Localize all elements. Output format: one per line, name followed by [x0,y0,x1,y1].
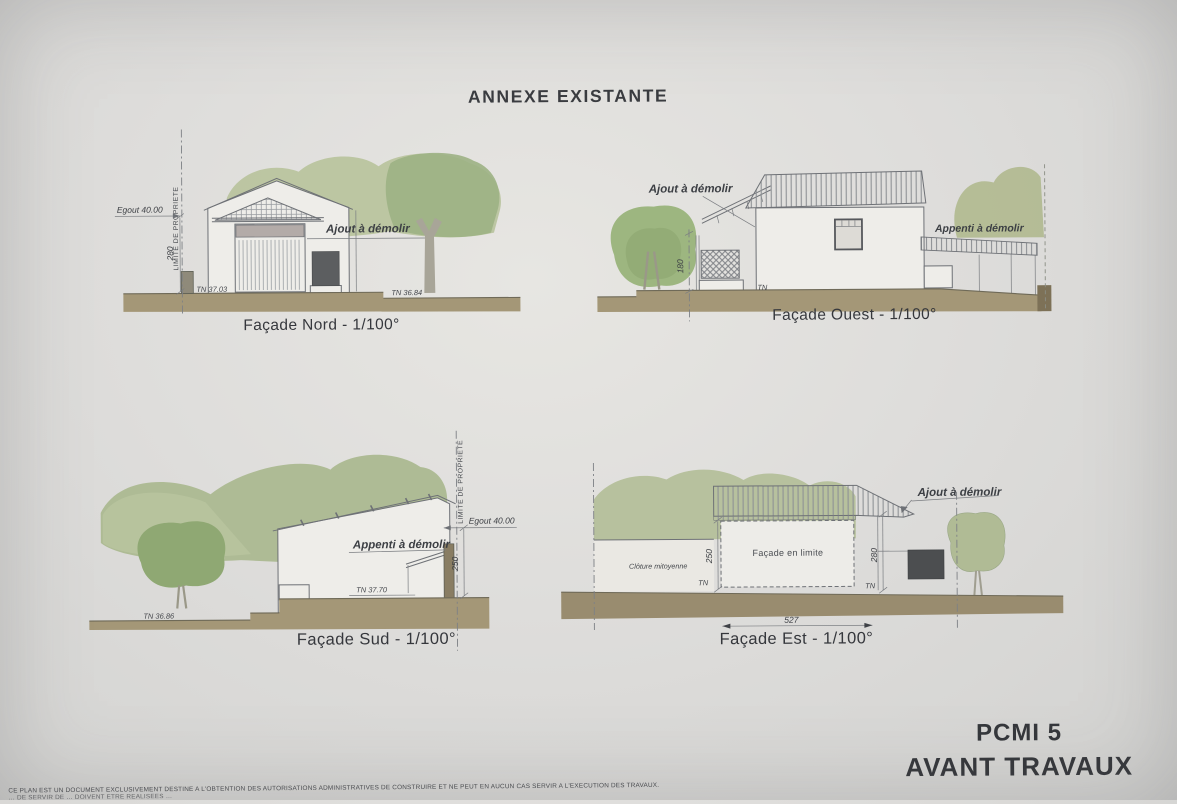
boundary-post [181,271,193,293]
tn-right: TN [865,581,876,590]
caption-facade-ouest: Façade Ouest - 1/100° [772,306,937,324]
dim-280: 280 [869,548,879,564]
egout-label: Egout 40.00 [469,515,515,525]
caption-facade-nord: Façade Nord - 1/100° [243,316,399,334]
fence-area: Clôture mitoyenne [594,539,714,592]
dim-250: 250 [704,549,714,565]
tree-trunk [974,571,982,598]
property-line-label: LIMITE DE PROPRIETE [457,440,465,524]
tn-3703: TN 37.03 [196,285,228,294]
arrowhead-left [722,624,730,629]
stamp-phase: AVANT TRAVAUX [889,751,1149,784]
demolish-block [312,252,339,286]
cloture-label: Clôture mitoyenne [629,561,687,570]
ajout-demolir-label: Ajout à démolir [325,223,410,236]
disclaimer: CE PLAN EST UN DOCUMENT EXCLUSIVEMENT DE… [8,781,768,800]
appenti-demolir-label: Appenti à démolir [934,222,1025,235]
demolish-block [908,550,944,579]
dim-527: 527 [784,615,799,625]
ground-est [561,589,1063,619]
arrowhead-right [864,623,872,628]
tn-3686: TN 36.86 [143,612,175,621]
building-ouest [746,171,927,291]
dim-280: 280 [165,246,175,262]
tree-trunk [177,585,186,608]
facade-ouest-drawing: Ajout à démolir 180 TN Appenti à démolir… [578,142,1079,335]
egout-label: Egout 40.00 [117,205,163,215]
corrugation-edge [714,515,856,520]
title-block-stamp: PCMI 5 AVANT TRAVAUX [889,719,1149,784]
tn-left: TN [698,578,709,587]
tn-label: TN [757,283,768,292]
dim-180: 180 [675,259,685,274]
appenti-demolir-label: Appenti à démolir [352,539,451,552]
caption-facade-est: Façade Est - 1/100° [720,629,874,648]
facade-sud-drawing: LIMITE DE PROPRIETE Egout 40.00 250 Appe… [80,425,581,663]
facade-est-drawing: Clôture mitoyenne Façade en limite 250 T… [550,432,1076,660]
window [835,219,862,249]
facade-nord-drawing: LIMITE DE PROPRIETE Egout 40.00 280 Ajou… [78,115,539,343]
page-title: ANNEXE EXISTANTE [398,85,738,108]
building-est: Façade en limite [714,485,945,591]
caption-facade-sud: Façade Sud - 1/100° [297,630,456,649]
ajout-demolir-label: Ajout à démolir [917,486,1002,499]
stamp-code: PCMI 5 [889,719,1149,749]
facade-en-limite-label: Façade en limite [752,548,823,558]
scanned-plan-sheet: ANNEXE EXISTANTE LIMITE DE PRO [0,0,1177,804]
tn-3684: TN 36.84 [391,288,422,297]
dim-250: 250 [450,556,460,572]
roof [746,171,926,208]
ajout-demolir-label: Ajout à démolir [648,183,733,196]
tn-3770: TN 37.70 [356,585,388,594]
